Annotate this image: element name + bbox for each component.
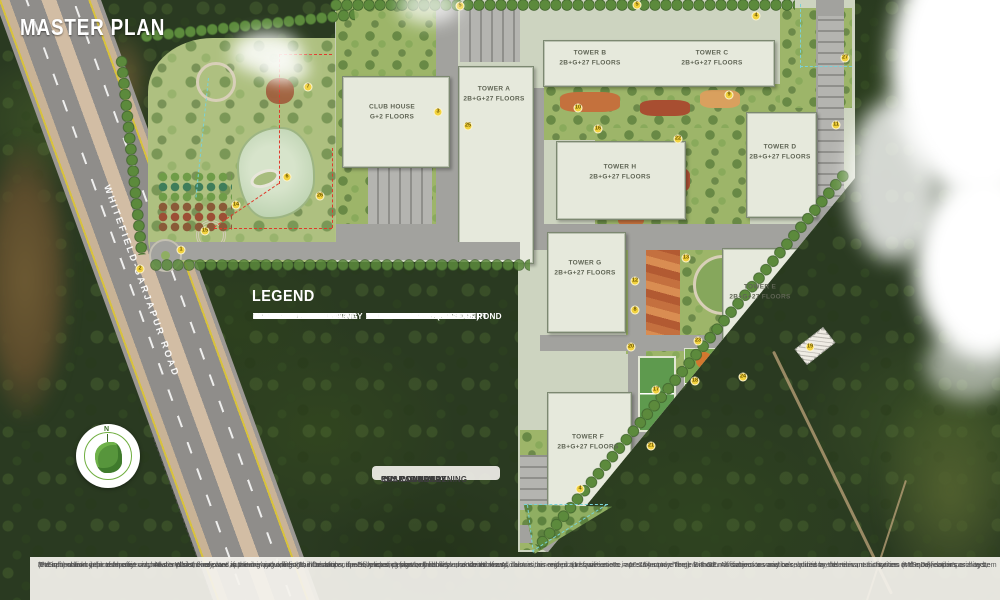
site-shape-icon bbox=[95, 442, 122, 473]
legend: LEGEND 1 ARRIVAL PLAZA 2 SECURITY CABIN … bbox=[252, 288, 322, 306]
ca-boundary-line bbox=[332, 148, 333, 228]
pos-boundary-line bbox=[800, 4, 801, 68]
tower-building bbox=[547, 232, 626, 333]
tower-building bbox=[543, 40, 775, 87]
compass-north-indicator: N bbox=[76, 424, 140, 488]
ca-boundary-line bbox=[214, 228, 332, 229]
play-mulch-area bbox=[266, 78, 294, 104]
north-label: N bbox=[104, 426, 109, 433]
legend-item-label: AMPHITHEATRE bbox=[253, 312, 320, 321]
legend-item-label: ORCHARD bbox=[366, 312, 409, 321]
boundary-label: KHARAB AREA bbox=[381, 475, 441, 484]
legend-title: LEGEND bbox=[252, 288, 315, 306]
pos-boundary-line bbox=[800, 66, 852, 67]
disclaimer: The information depicted herein viz., ma… bbox=[30, 557, 1000, 600]
orchard-row bbox=[158, 182, 232, 192]
page-title: MASTER PLAN bbox=[20, 14, 165, 41]
boundary-trees bbox=[150, 258, 530, 272]
boundary-legend: POS BOUNDARY C.A. BOUNDARY 90m ROAD WIDE… bbox=[372, 466, 500, 480]
tower-building bbox=[458, 66, 534, 264]
tower-building bbox=[746, 112, 817, 218]
ca-boundary-line bbox=[279, 54, 332, 55]
ca-boundary-line bbox=[279, 54, 280, 184]
disclaimer-line: (Ft/Sq.ft) shown is for reference only. … bbox=[38, 561, 510, 571]
tower-building bbox=[342, 76, 450, 168]
play-ring-path bbox=[196, 62, 236, 102]
orchard-row bbox=[158, 202, 232, 212]
master-plan-canvas: WHITEFIELD-SARJAPUR ROAD bbox=[0, 0, 1000, 600]
boundary-trees bbox=[330, 0, 795, 12]
orchard-row bbox=[158, 222, 232, 232]
pos-boundary-line bbox=[524, 504, 608, 505]
orchard-row bbox=[158, 172, 232, 182]
tower-building bbox=[556, 141, 686, 220]
